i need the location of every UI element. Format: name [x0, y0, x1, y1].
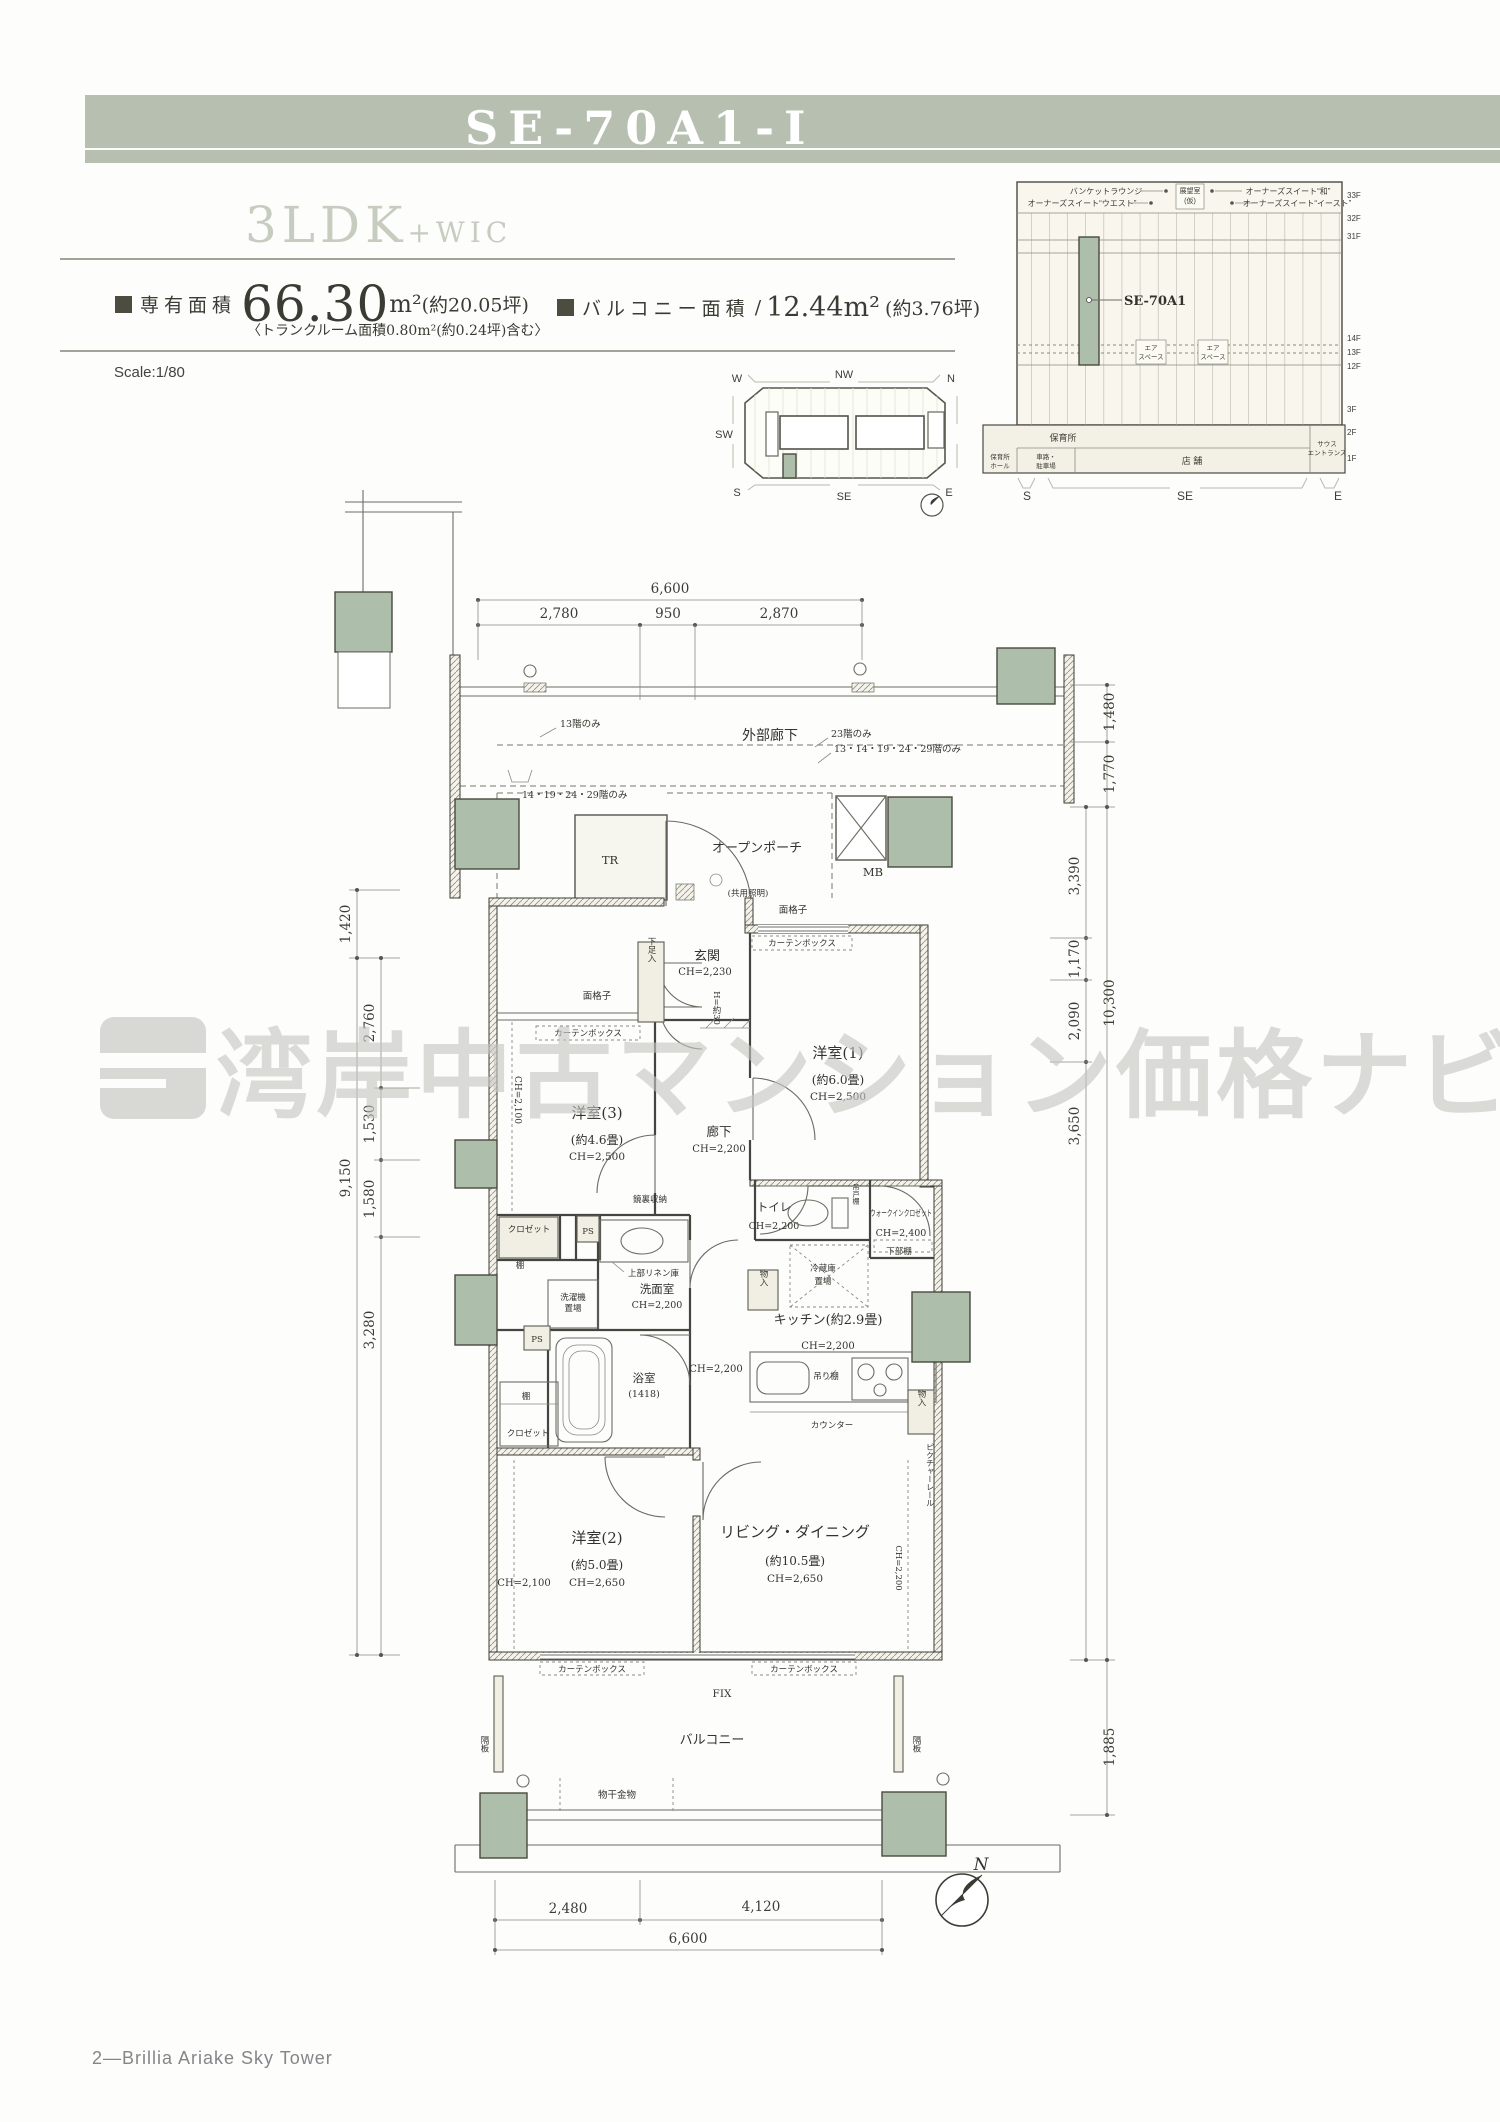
mirror-storage-label: 鏡裏収納 — [633, 1194, 667, 1205]
svg-text:SW: SW — [715, 429, 733, 441]
exterior-corridor-label: 外部廊下 — [742, 727, 798, 744]
entrance-label: 玄関 — [694, 949, 720, 964]
svg-text:W: W — [732, 373, 743, 385]
owners-suite-wa-label: オーナーズスイート“和” — [1246, 186, 1331, 196]
svg-text:1,170: 1,170 — [1067, 940, 1083, 979]
column — [888, 797, 952, 867]
counter-label: カウンター — [811, 1421, 854, 1431]
svg-text:3,650: 3,650 — [1067, 1107, 1083, 1146]
svg-text:置場: 置場 — [814, 1276, 832, 1287]
svg-text:1,420: 1,420 — [338, 905, 354, 944]
shared-light-note: (共用照明) — [728, 888, 769, 899]
bedroom2-low-ceiling: CH=2,100 — [497, 1578, 550, 1589]
air-space-label: エア — [1207, 344, 1221, 352]
svg-text:1,770: 1,770 — [1102, 755, 1118, 794]
partition-label: 隔板 — [479, 1736, 489, 1754]
svg-text:エントランス: エントランス — [1308, 449, 1347, 457]
column — [480, 1793, 527, 1858]
washroom-label: 洗面室 — [640, 1282, 675, 1296]
svg-text:2,480: 2,480 — [549, 1901, 588, 1917]
svg-text:SE: SE — [837, 491, 852, 503]
svg-text:(約4.6畳): (約4.6畳) — [571, 1132, 623, 1147]
column — [455, 799, 519, 869]
dim-top-total: 6,600 — [651, 581, 690, 597]
dim-bottom-total: 6,600 — [669, 1931, 708, 1947]
svg-text:(仮): (仮) — [1184, 196, 1196, 205]
svg-text:33F: 33F — [1347, 191, 1361, 200]
svg-text:3,280: 3,280 — [362, 1311, 378, 1350]
lattice-label: 面格子 — [583, 990, 612, 1002]
svg-text:(1418): (1418) — [628, 1389, 660, 1400]
svg-text:(約10.5畳): (約10.5畳) — [765, 1553, 825, 1568]
meter-box-label: MB — [863, 865, 883, 879]
svg-text:CH=2,650: CH=2,650 — [767, 1573, 823, 1585]
svg-text:1,480: 1,480 — [1102, 693, 1118, 732]
svg-text:1F: 1F — [1347, 454, 1356, 463]
toilet-shelf-label: 吊戸棚 — [852, 1184, 860, 1206]
air-space-label: エア — [1145, 344, 1159, 352]
keyplan-compass-icon — [921, 494, 943, 516]
owners-suite-west-label: オーナーズスイート“ウエスト” — [1028, 198, 1137, 208]
balcony-label: バルコニー — [680, 1733, 745, 1748]
washer-label: 洗濯機 — [560, 1292, 586, 1303]
south-entrance-label: サウス — [1317, 440, 1337, 448]
shelf-label: 棚 — [522, 1391, 531, 1402]
shelf-label: 棚 — [516, 1260, 525, 1271]
hall2-ceiling: CH=2,200 — [689, 1364, 742, 1375]
floor-note-23f: 23階のみ — [831, 729, 872, 740]
svg-text:CH=2,200: CH=2,200 — [692, 1144, 745, 1155]
svg-text:駐車場: 駐車場 — [1036, 461, 1056, 470]
svg-text:3F: 3F — [1347, 405, 1356, 414]
svg-text:1,580: 1,580 — [362, 1180, 378, 1219]
svg-text:1,530: 1,530 — [362, 1105, 378, 1144]
column — [455, 1275, 497, 1345]
svg-text:(約5.0畳): (約5.0畳) — [571, 1557, 623, 1572]
wic-shelf-label: 下部棚 — [886, 1246, 912, 1257]
open-porch-label: オープンポーチ — [712, 841, 802, 856]
svg-text:(約6.0畳): (約6.0畳) — [812, 1072, 864, 1087]
step-height-note: H=約30 — [711, 991, 721, 1025]
ps-label: PS — [582, 1227, 594, 1237]
shops-label: 店 舗 — [1182, 455, 1203, 466]
closet-label: クロゼット — [508, 1224, 551, 1235]
nursery-label: 保育所 — [1049, 432, 1076, 443]
svg-text:10,300: 10,300 — [1102, 979, 1118, 1026]
svg-text:CH=2,200: CH=2,200 — [749, 1221, 800, 1232]
trunk-room-label: TR — [602, 853, 619, 867]
fix-window-label: FIX — [713, 1688, 732, 1700]
banquet-lounge-label: バンケットラウンジ — [1070, 187, 1142, 196]
wic-label: ウォークインクロゼット — [870, 1208, 932, 1219]
svg-text:1,885: 1,885 — [1102, 1728, 1118, 1767]
elevation-dir-se: SE — [1177, 489, 1193, 503]
curtain-box-label: カーテンボックス — [768, 939, 836, 949]
living-dining-label: リビング・ダイニング — [720, 1523, 870, 1541]
compass-icon: N — [936, 1855, 990, 1926]
column — [335, 592, 392, 652]
svg-text:12F: 12F — [1347, 362, 1361, 371]
svg-text:14F: 14F — [1347, 334, 1361, 343]
closet-label: クロゼット — [507, 1428, 550, 1439]
ps-label: PS — [531, 1335, 543, 1345]
compass-north-label: N — [973, 1855, 990, 1875]
svg-text:S: S — [733, 487, 740, 499]
partition-label: 隔板 — [911, 1736, 921, 1754]
keyplan-unit-marker — [783, 454, 796, 478]
svg-text:2F: 2F — [1347, 428, 1356, 437]
bedroom1-label: 洋室(1) — [812, 1044, 863, 1062]
curtain-box-label: カーテンボックス — [558, 1665, 626, 1675]
shoe-cabinet-label: 下足入 — [646, 937, 656, 963]
nursery-hall-label: 保育所 — [990, 452, 1010, 461]
column — [455, 1140, 497, 1188]
bedroom3-label: 洋室(3) — [571, 1104, 622, 1122]
svg-text:ホール: ホール — [990, 462, 1010, 470]
svg-text:9,150: 9,150 — [338, 1159, 354, 1198]
elevation-direction-braces — [1018, 478, 1339, 488]
floor-plan-page: SE-70A1-Ⅰ 3LDK+WIC 専有面積 66.30m²(約20.05坪)… — [0, 0, 1500, 2122]
bedroom3-low-ceiling: CH=2,100 — [512, 1076, 522, 1124]
floor-plan-drawing: 外部廊下 13階のみ 23階のみ 13・14・19・24・29階のみ 14・19… — [335, 490, 1118, 1955]
svg-text:置場: 置場 — [564, 1303, 582, 1314]
column — [882, 1792, 946, 1856]
storage-label: 物入 — [916, 1389, 926, 1407]
svg-text:2,090: 2,090 — [1067, 1002, 1083, 1041]
svg-text:E: E — [945, 487, 952, 499]
unit-position-label: SE-70A1 — [1124, 294, 1186, 309]
svg-text:2,760: 2,760 — [362, 1004, 378, 1043]
svg-text:4,120: 4,120 — [742, 1899, 781, 1915]
footer-page-title: 2—Brillia Ariake Sky Tower — [92, 2048, 333, 2069]
floor-note-13f: 13階のみ — [560, 719, 601, 730]
parking-label: 車路・ — [1036, 452, 1056, 461]
bedroom2-label: 洋室(2) — [571, 1529, 622, 1547]
svg-text:スペース: スペース — [1138, 353, 1163, 361]
svg-text:CH=2,500: CH=2,500 — [569, 1151, 625, 1163]
picture-rail-label: ピクチャーレール — [926, 1443, 935, 1507]
hanging-shelf-label: 吊り棚 — [813, 1371, 839, 1382]
svg-text:3,390: 3,390 — [1067, 857, 1083, 896]
svg-text:N: N — [947, 373, 955, 385]
svg-text:CH=2,400: CH=2,400 — [876, 1228, 927, 1239]
curtain-box-label: カーテンボックス — [770, 1665, 838, 1675]
column — [912, 1292, 970, 1362]
ld-low-ceiling: CH=2,200 — [893, 1545, 903, 1590]
floor-note-multi: 13・14・19・24・29階のみ — [834, 744, 961, 755]
drying-fixture-label: 物干金物 — [598, 1789, 637, 1801]
drawing-canvas: SE-70A1 エア スペース エア スペース バンケットラウンジ オーナーズス… — [0, 0, 1500, 2122]
kitchen-label: キッチン(約2.9畳) — [774, 1313, 883, 1328]
svg-text:13F: 13F — [1347, 348, 1361, 357]
svg-text:31F: 31F — [1347, 232, 1361, 241]
svg-text:CH=2,500: CH=2,500 — [810, 1091, 866, 1103]
storage-label: 物入 — [758, 1269, 768, 1287]
svg-text:950: 950 — [655, 606, 681, 622]
lattice-label: 面格子 — [779, 904, 808, 916]
svg-text:32F: 32F — [1347, 214, 1361, 223]
key-plan-diagram: W NW N SW S SE E — [715, 369, 957, 516]
elevation-dir-e: E — [1334, 489, 1342, 503]
fridge-label: 冷蔵庫 — [810, 1263, 836, 1274]
svg-text:2,870: 2,870 — [760, 606, 799, 622]
elevation-dir-s: S — [1023, 489, 1031, 503]
owners-suite-east-label: オーナーズスイート“イースト” — [1243, 198, 1352, 208]
svg-text:CH=2,200: CH=2,200 — [632, 1300, 683, 1311]
svg-text:2,780: 2,780 — [540, 606, 579, 622]
svg-text:CH=2,200: CH=2,200 — [801, 1341, 854, 1352]
svg-text:CH=2,230: CH=2,230 — [678, 967, 731, 978]
observatory-label: 展望室 — [1180, 186, 1201, 195]
curtain-box-label: カーテンボックス — [554, 1029, 622, 1039]
floor-note-multi2: 14・19・24・29階のみ — [522, 790, 627, 801]
svg-text:NW: NW — [835, 369, 854, 381]
bath-label: 浴室 — [633, 1371, 656, 1385]
floor-labels: 33F 32F 31F 14F 13F 12F 3F 2F 1F — [1347, 191, 1361, 463]
svg-text:CH=2,650: CH=2,650 — [569, 1577, 625, 1589]
toilet-label: トイレ — [757, 1200, 792, 1214]
building-elevation-diagram: SE-70A1 エア スペース エア スペース バンケットラウンジ オーナーズス… — [983, 182, 1361, 503]
svg-text:スペース: スペース — [1200, 353, 1225, 361]
hall-label: 廊下 — [706, 1124, 731, 1139]
linen-label: 上部リネン庫 — [628, 1268, 680, 1279]
column — [997, 648, 1055, 704]
